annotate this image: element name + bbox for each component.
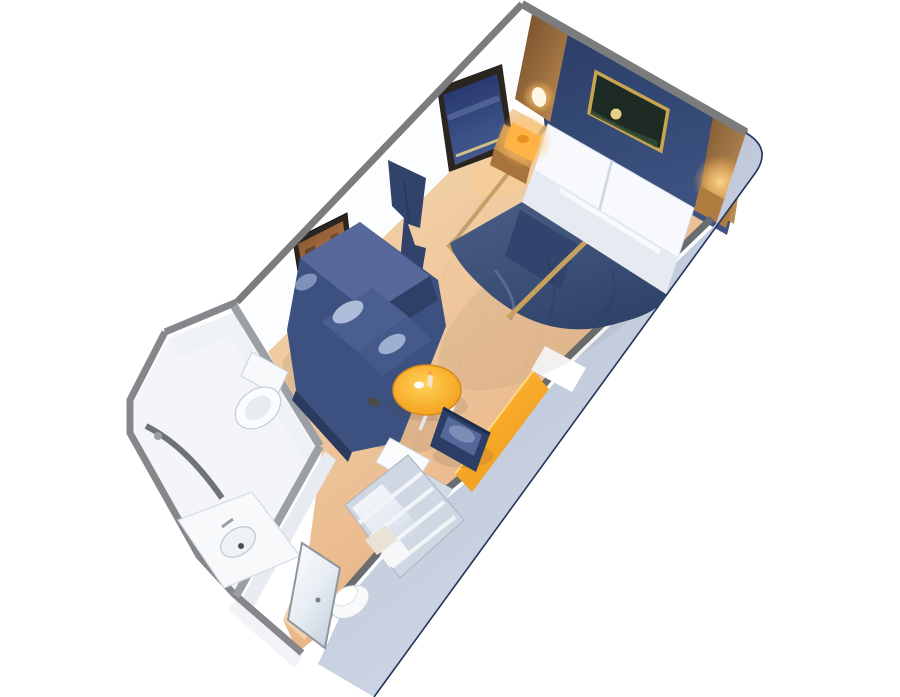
coffee-table-top [393,365,461,415]
table-candle [427,374,433,388]
sink-drain [238,543,244,549]
shower-head [154,432,162,440]
table-candle-flame [428,371,432,375]
entry-door-handle [316,598,321,603]
floorplan-svg [0,0,900,697]
headboard-art-moon [611,109,622,120]
stateroom-floorplan-image [0,0,900,697]
nightstand-lamp-top [517,135,529,143]
table-cup [414,382,424,389]
